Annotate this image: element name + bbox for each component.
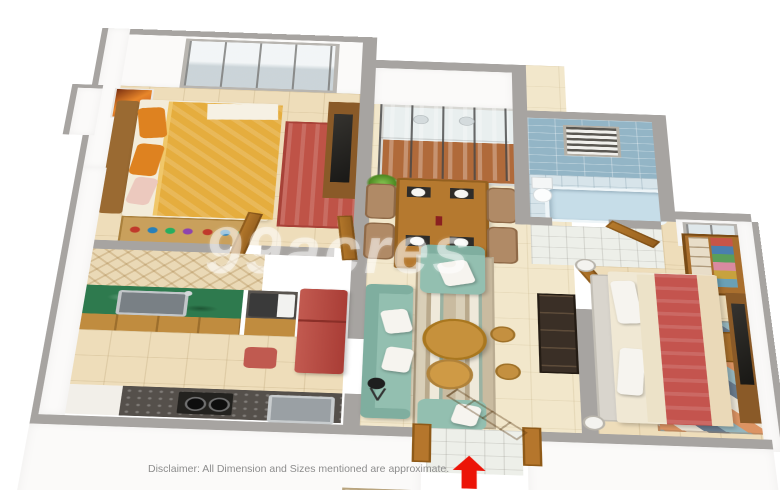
disclaimer-text: Disclaimer: All Dimension and Sizes ment…	[148, 463, 449, 475]
dining-chair-right-1	[487, 187, 518, 223]
dining-centerpiece	[436, 216, 443, 225]
bedroom1-window	[179, 39, 339, 94]
sofa-armrest-top	[366, 284, 414, 295]
red-ottoman	[243, 347, 277, 369]
kitchen-sink	[115, 290, 189, 317]
balcony-wall-face	[374, 68, 512, 109]
bathtub	[544, 186, 667, 225]
bedroom1-tv-screen	[330, 114, 353, 183]
side-stool-1	[490, 326, 515, 343]
sofa-armrest-bottom	[360, 407, 410, 419]
perspective-scene	[0, 0, 780, 490]
dining-plate-2	[454, 189, 468, 198]
balcony-light-1	[413, 115, 429, 125]
bed1-sheet-fold	[207, 104, 278, 120]
dining-chair-left-1	[365, 183, 397, 219]
bottom-wall-face-right	[527, 441, 780, 490]
bed1-pillow-orange-1	[137, 107, 167, 138]
bath-lobby-floor	[531, 225, 665, 269]
wall-bedroom1-living-lower	[343, 394, 361, 428]
apartment-plan	[0, 27, 780, 490]
kitchen-doorway-patch	[61, 384, 123, 416]
dining-plate-3	[410, 237, 425, 246]
dining-chair-left-2	[363, 222, 395, 259]
entrance-frame-left	[412, 423, 432, 462]
floorplan-render: 99acres Disclaimer: All Dimension and Si…	[0, 0, 780, 490]
balcony-light-2	[459, 116, 475, 126]
toilet-bowl	[533, 188, 553, 203]
tilt-wrapper	[0, 0, 780, 490]
refrigerator	[294, 288, 348, 374]
bathroom-vent-window	[563, 125, 621, 158]
kitchen-sink-2	[267, 395, 335, 425]
bed2-pillow-2	[617, 347, 646, 396]
bathroom-front-wall-a	[530, 217, 552, 226]
side-stool-2	[495, 363, 521, 381]
wall-bedroom1-south-b	[261, 246, 335, 257]
microwave	[248, 293, 295, 317]
dining-plate-1	[411, 188, 425, 197]
dark-console-shelf	[537, 293, 579, 374]
balcony-glass-mullions	[377, 104, 510, 181]
